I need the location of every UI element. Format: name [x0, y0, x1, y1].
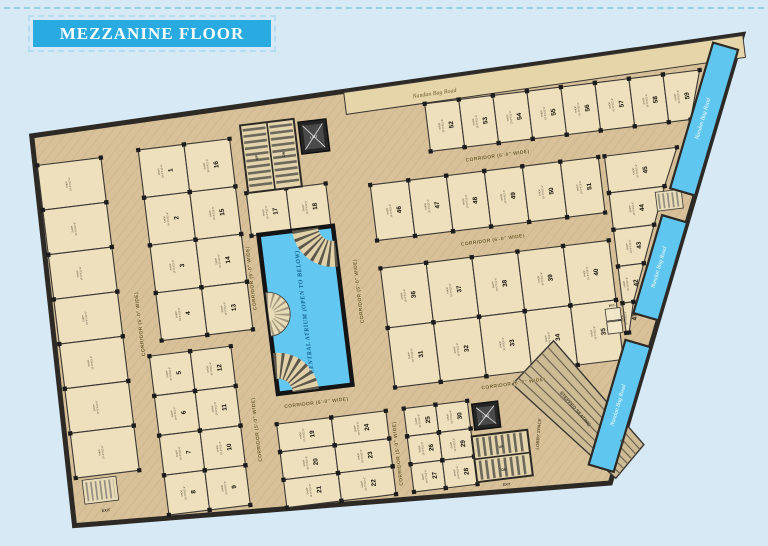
column-pillar	[558, 85, 563, 90]
column-pillar	[627, 76, 632, 81]
column-pillar	[57, 342, 62, 347]
column-pillar	[675, 145, 680, 150]
shop-unit	[154, 391, 200, 436]
column-pillar	[620, 301, 625, 306]
column-pillar	[596, 155, 601, 160]
column-pillar	[336, 471, 341, 476]
column-pillar	[368, 183, 373, 188]
column-pillar	[248, 503, 253, 508]
column-pillar	[598, 128, 603, 133]
shop-number: 29	[460, 439, 468, 447]
shop-unit	[54, 292, 123, 344]
column-pillar	[408, 462, 413, 467]
shop-unit	[425, 100, 465, 152]
shop-unit	[435, 401, 470, 433]
shop-unit	[563, 240, 616, 305]
column-pillar	[193, 389, 198, 394]
column-pillar	[35, 163, 40, 168]
shop-number: 34	[554, 333, 562, 341]
shop-unit	[184, 139, 236, 192]
shop-unit	[408, 176, 453, 236]
stair-dn-label: DN	[501, 467, 507, 472]
shop-unit	[493, 91, 533, 143]
column-pillar	[611, 227, 616, 232]
column-pillar	[602, 154, 607, 159]
shop-unit	[370, 180, 415, 240]
wc-label: W.C.	[609, 303, 616, 308]
lift-top: LIFT	[298, 119, 330, 154]
shop-unit	[48, 247, 117, 299]
column-pillar	[153, 291, 158, 296]
column-pillar	[406, 178, 411, 183]
shop-number: 21	[316, 485, 324, 493]
shop-number: 15	[219, 208, 227, 216]
column-pillar	[433, 402, 438, 407]
column-pillar	[228, 344, 233, 349]
shop-unit	[338, 466, 396, 500]
column-pillar	[606, 238, 611, 243]
column-pillar	[593, 81, 598, 86]
shop-unit	[411, 460, 446, 492]
column-pillar	[238, 423, 243, 428]
shop-unit	[286, 183, 331, 231]
column-pillar	[661, 72, 666, 77]
shop-number: 19	[309, 429, 317, 437]
shop-number: 30	[456, 411, 464, 419]
shop-number: 13	[230, 303, 238, 311]
column-pillar	[558, 159, 563, 164]
column-pillar	[437, 430, 442, 435]
shop-unit	[246, 188, 291, 236]
shop-unit	[65, 381, 134, 433]
shop-unit	[59, 336, 128, 388]
shop-unit	[70, 426, 139, 478]
shop-number: 25	[424, 415, 432, 423]
shop-number: 22	[370, 478, 378, 486]
column-pillar	[137, 468, 142, 473]
column-pillar	[496, 141, 501, 146]
shop-number: 12	[216, 363, 224, 371]
column-pillar	[167, 513, 172, 518]
column-pillar	[157, 433, 162, 438]
column-pillar	[405, 434, 410, 439]
column-pillar	[187, 190, 192, 195]
shop-unit	[472, 252, 525, 317]
shop-number: 56	[584, 104, 592, 112]
shop-unit	[190, 186, 242, 239]
shop-unit	[200, 426, 246, 471]
shop-unit	[43, 202, 112, 254]
shop-unit	[164, 470, 210, 515]
shop-unit	[433, 317, 486, 382]
shop-number: 20	[312, 457, 320, 465]
column-pillar	[40, 208, 45, 213]
column-pillar	[239, 232, 244, 237]
column-pillar	[385, 326, 390, 331]
shop-unit	[446, 171, 491, 231]
shop-number: 11	[221, 403, 229, 411]
shop-number: 59	[684, 91, 692, 99]
shop-number: 10	[226, 443, 234, 451]
column-pillar	[251, 327, 256, 332]
shop-unit	[560, 157, 605, 217]
shop-number: 26	[428, 443, 436, 451]
shop-unit	[196, 234, 248, 287]
column-pillar	[51, 297, 56, 302]
exit-stair	[82, 476, 119, 504]
column-pillar	[387, 436, 392, 441]
column-pillar	[468, 426, 473, 431]
column-pillar	[482, 169, 487, 174]
column-pillar	[199, 285, 204, 290]
column-pillar	[530, 137, 535, 142]
column-pillar	[465, 398, 470, 403]
column-pillar	[243, 463, 248, 468]
column-pillar	[489, 224, 494, 229]
column-pillar	[159, 338, 164, 343]
column-pillar	[443, 486, 448, 491]
column-pillar	[323, 181, 328, 186]
shop-number: 54	[516, 112, 524, 120]
column-pillar	[440, 458, 445, 463]
column-pillar	[136, 148, 141, 153]
shop-unit	[629, 75, 669, 127]
column-pillar	[281, 477, 286, 482]
column-pillar	[401, 406, 406, 411]
shop-unit	[380, 263, 433, 328]
shop-number: 37	[456, 284, 464, 292]
column-pillar	[522, 309, 527, 314]
column-pillar	[233, 184, 238, 189]
column-pillar	[104, 200, 109, 205]
shop-number: 24	[363, 423, 371, 431]
column-pillar	[46, 252, 51, 257]
service-stair	[655, 189, 683, 211]
shop-number: 16	[213, 160, 221, 168]
shop-number: 40	[593, 268, 601, 276]
shop-unit	[190, 346, 236, 391]
column-pillar	[462, 145, 467, 150]
column-pillar	[428, 149, 433, 154]
column-pillar	[431, 320, 436, 325]
column-pillar	[666, 120, 671, 125]
column-pillar	[632, 124, 637, 129]
shop-unit	[407, 432, 442, 464]
column-pillar	[412, 490, 417, 495]
column-pillar	[205, 333, 210, 338]
shop-unit	[156, 287, 208, 340]
column-pillar	[162, 473, 167, 478]
column-pillar	[278, 450, 283, 455]
shop-unit	[159, 431, 205, 476]
shop-unit	[479, 311, 532, 376]
column-pillar	[394, 492, 399, 497]
column-pillar	[527, 220, 532, 225]
column-pillar	[616, 264, 621, 269]
shop-number: 47	[434, 201, 442, 209]
shop-number: 58	[652, 95, 660, 103]
column-pillar	[515, 249, 520, 254]
column-pillar	[332, 443, 337, 448]
column-pillar	[193, 237, 198, 242]
column-pillar	[131, 423, 136, 428]
column-pillar	[115, 289, 120, 294]
column-pillar	[152, 394, 157, 399]
column-pillar	[99, 155, 104, 160]
shop-number: 39	[547, 273, 555, 281]
column-pillar	[182, 142, 187, 147]
shop-unit	[138, 144, 190, 197]
shop-unit	[522, 162, 567, 222]
column-pillar	[274, 422, 279, 427]
column-pillar	[339, 499, 344, 504]
shop-number: 27	[431, 471, 439, 479]
shop-number: 50	[548, 187, 556, 195]
column-pillar	[233, 384, 238, 389]
shop-unit	[150, 240, 202, 293]
shop-number: 42	[633, 278, 641, 286]
column-pillar	[375, 238, 380, 243]
shop-unit	[388, 322, 441, 387]
column-pillar	[641, 261, 646, 266]
shop-unit	[149, 351, 195, 396]
shop-number: 38	[501, 279, 509, 287]
column-pillar	[73, 476, 78, 481]
shop-unit	[439, 429, 474, 461]
column-pillar	[378, 266, 383, 271]
column-pillar	[126, 379, 131, 384]
column-pillar	[148, 243, 153, 248]
shop-number: 46	[396, 205, 404, 213]
shop-number: 48	[472, 196, 480, 204]
column-pillar	[561, 244, 566, 249]
shop-unit	[527, 87, 567, 139]
shop-unit	[442, 456, 477, 488]
column-pillar	[652, 222, 657, 227]
column-pillar	[142, 195, 147, 200]
column-pillar	[198, 428, 203, 433]
column-pillar	[329, 415, 334, 420]
column-pillar	[393, 385, 398, 390]
shop-number: 45	[642, 165, 650, 173]
shop-number: 14	[224, 255, 232, 263]
shop-unit	[144, 192, 196, 245]
shop-unit	[595, 79, 635, 131]
shop-unit	[195, 386, 241, 431]
column-pillar	[490, 93, 495, 98]
shop-unit	[426, 257, 479, 322]
shop-number: 33	[509, 338, 517, 346]
shop-number: 23	[367, 451, 375, 459]
column-pillar	[456, 97, 461, 102]
shop-number: 17	[272, 207, 280, 215]
shop-number: 57	[618, 99, 626, 107]
column-pillar	[147, 354, 152, 359]
shop-number: 51	[586, 182, 594, 190]
shop-number: 28	[463, 467, 471, 475]
shop-number: 31	[417, 350, 425, 358]
shop-number: 55	[550, 108, 558, 116]
shop-unit	[283, 473, 341, 507]
column-pillar	[520, 164, 525, 169]
shop-number: 52	[448, 120, 456, 128]
column-pillar	[624, 331, 629, 336]
column-pillar	[413, 234, 418, 239]
shop-unit	[459, 95, 499, 147]
column-pillar	[662, 184, 667, 189]
column-pillar	[607, 191, 612, 196]
shop-number: 36	[410, 290, 418, 298]
column-pillar	[249, 234, 254, 239]
floor-plan: Nandan Bag Road SHOP10'-0"X12'-6"SHOP10'…	[0, 0, 768, 546]
column-pillar	[227, 136, 232, 141]
column-pillar	[109, 245, 114, 250]
column-pillar	[62, 386, 67, 391]
shop-unit	[404, 405, 439, 437]
column-pillar	[614, 298, 619, 303]
column-pillar	[422, 101, 427, 106]
column-pillar	[565, 215, 570, 220]
shop-unit	[37, 158, 106, 210]
column-pillar	[188, 349, 193, 354]
shop-unit	[561, 83, 601, 135]
shop-number: 32	[463, 344, 471, 352]
shop-unit	[484, 166, 529, 226]
column-pillar	[484, 374, 489, 379]
stair-dn-label: DN	[281, 151, 286, 157]
column-pillar	[525, 89, 530, 94]
column-pillar	[390, 464, 395, 469]
lift-bottom: LIFT	[472, 401, 501, 430]
column-pillar	[68, 431, 73, 436]
column-pillar	[469, 255, 474, 260]
column-pillar	[451, 229, 456, 234]
shop-unit	[517, 246, 570, 311]
shop-number: 53	[482, 116, 490, 124]
column-pillar	[438, 380, 443, 385]
column-pillar	[603, 210, 608, 215]
column-pillar	[120, 334, 125, 339]
shop-number: 18	[312, 202, 320, 210]
shop-unit	[201, 282, 253, 335]
plan-root: Nandan Bag Road SHOP10'-0"X12'-6"SHOP10'…	[25, 34, 768, 546]
column-pillar	[285, 505, 290, 510]
column-pillar	[424, 260, 429, 265]
column-pillar	[477, 314, 482, 319]
column-pillar	[207, 508, 212, 513]
shop-number: 35	[600, 327, 608, 335]
column-pillar	[384, 408, 389, 413]
stair-core-bottom: UP DN	[472, 430, 533, 482]
column-pillar	[202, 468, 207, 473]
shop-number: 43	[635, 241, 643, 249]
shop-number: 49	[510, 191, 518, 199]
column-pillar	[568, 303, 573, 308]
column-pillar	[444, 173, 449, 178]
stair-core-top: UP DN	[240, 119, 302, 193]
shop-number: 44	[638, 203, 646, 211]
shop-unit	[205, 465, 251, 510]
column-pillar	[564, 132, 569, 137]
column-pillar	[697, 68, 702, 73]
